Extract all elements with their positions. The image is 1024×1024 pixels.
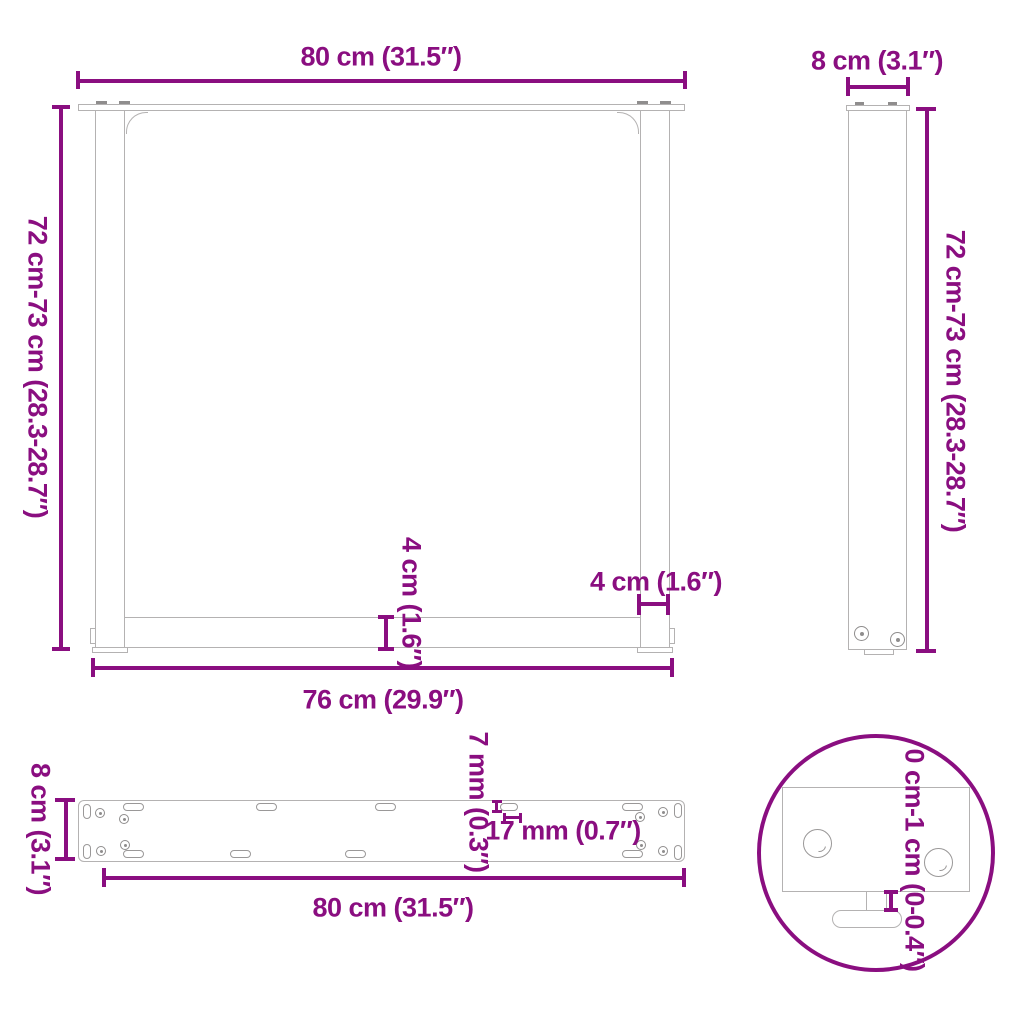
dimension-tick (670, 658, 674, 677)
dimension-tick (683, 71, 687, 89)
detail-foot-pad (832, 910, 902, 928)
dimension-tick (906, 77, 910, 96)
front-right-foot (637, 647, 673, 653)
front-inner-width-label: 76 cm (29.9″) (302, 687, 463, 714)
dimension-tick (916, 107, 936, 111)
front-left-leg-fillet (126, 112, 148, 134)
top-screw (95, 808, 105, 818)
dimension-tick (52, 105, 70, 109)
dimension-line (889, 892, 893, 910)
top-slot (123, 850, 144, 858)
dimension-line (64, 800, 68, 861)
front-right-leg-knob (669, 628, 675, 644)
dimension-line (78, 79, 685, 83)
top-screw (658, 807, 668, 817)
side-height-label: 72 cm-73 cm (28.3-28.7″) (942, 230, 969, 533)
side-leg-bar (848, 110, 907, 650)
front-crossbar-label: 4 cm (1.6″) (398, 537, 425, 669)
front-left-foot (92, 647, 128, 653)
top-end-slot (83, 804, 91, 819)
detail-screw (803, 829, 832, 858)
front-width-label: 80 cm (31.5″) (300, 44, 461, 71)
side-plate-screw-mark (855, 102, 864, 105)
dimension-diagram: 80 cm (31.5″) 72 cm-73 cm (28.3-28.7″) 4… (0, 0, 1024, 1024)
side-screw (890, 632, 905, 647)
dimension-tick (682, 868, 686, 887)
dimension-line (104, 876, 684, 880)
front-plate-screw-mark (660, 101, 671, 104)
detail-adjust-label: 0 cm-1 cm (0-0.4″) (901, 748, 928, 971)
dimension-tick (916, 649, 936, 653)
dimension-tick (52, 647, 70, 651)
top-screw (119, 814, 129, 824)
front-plate-screw-mark (637, 101, 648, 104)
top-slot (256, 803, 277, 811)
top-slot (622, 850, 643, 858)
dimension-line (848, 85, 910, 89)
front-leg-width-label: 4 cm (1.6″) (590, 569, 722, 596)
dimension-tick (102, 868, 106, 887)
dimension-tick (55, 857, 75, 861)
front-plate-screw-mark (96, 101, 107, 104)
dimension-tick (55, 798, 75, 802)
top-length-label: 80 cm (31.5″) (312, 895, 473, 922)
top-screw (658, 846, 668, 856)
top-screw (96, 846, 106, 856)
front-height-label: 72 cm-73 cm (28.3-28.7″) (24, 216, 51, 519)
dimension-tick (91, 658, 95, 677)
front-left-leg-knob (90, 628, 96, 644)
dimension-line (639, 602, 669, 606)
front-plate-screw-mark (119, 101, 130, 104)
top-depth-label: 8 cm (3.1″) (27, 763, 54, 895)
dimension-line (93, 666, 672, 670)
side-plate-screw-mark (888, 102, 897, 105)
front-right-leg-fillet (617, 112, 639, 134)
dimension-tick (76, 71, 80, 89)
top-end-slot (83, 844, 91, 859)
top-slot (345, 850, 366, 858)
top-end-slot (674, 845, 682, 860)
top-slot (123, 803, 144, 811)
top-hole-width-label: 7 mm (0.3″) (465, 732, 492, 873)
side-foot (864, 649, 894, 655)
top-slot (500, 803, 518, 811)
top-end-slot (674, 803, 682, 818)
front-top-plate (78, 104, 685, 111)
top-screw (120, 840, 130, 850)
top-slot (375, 803, 396, 811)
front-crossbar (124, 617, 641, 648)
side-screw (854, 626, 869, 641)
dimension-line (495, 802, 498, 811)
front-left-leg (95, 110, 125, 648)
dimension-tick (846, 77, 850, 96)
top-hole-length-label: 17 mm (0.7″) (485, 818, 641, 845)
dimension-line (925, 109, 929, 653)
dimension-line (59, 107, 63, 651)
dimension-line (384, 617, 388, 649)
top-slot (230, 850, 251, 858)
top-slot (622, 803, 643, 811)
side-depth-label: 8 cm (3.1″) (811, 48, 943, 75)
